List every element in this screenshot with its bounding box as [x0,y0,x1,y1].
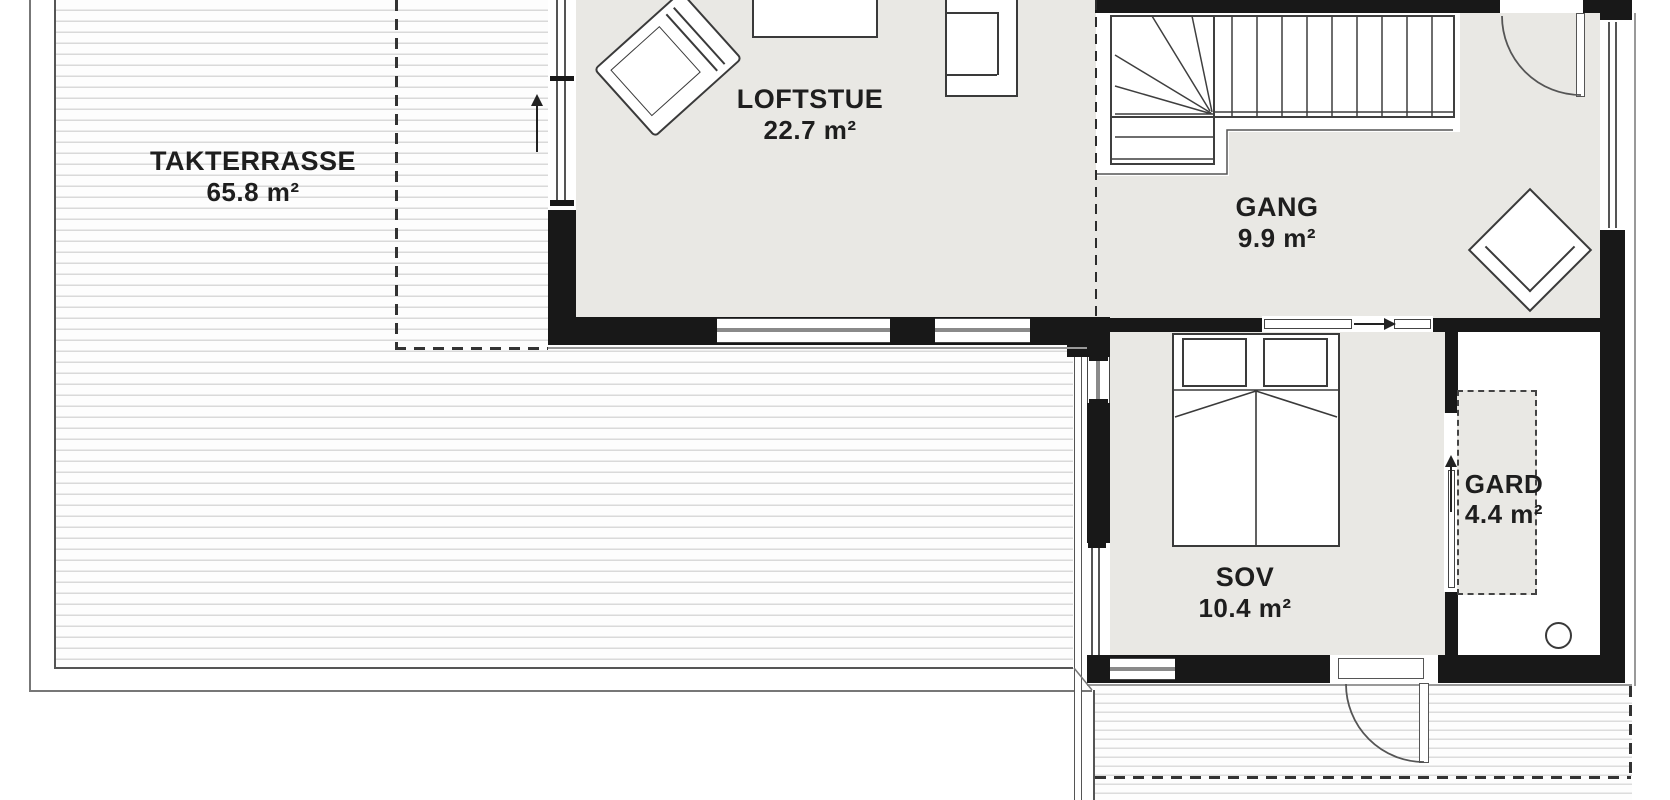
right-wall [1600,230,1625,683]
gard-bottom-wall [1438,655,1625,683]
loftstue-gang-divider [1095,0,1097,318]
sliding-door-gang-sov-panel [1264,319,1352,329]
terrace-frame-left [54,0,56,667]
entry-door-leaf [1576,13,1585,97]
roof-edge-under-loftstue [548,347,1087,349]
sov-left-window-2 [1087,543,1110,655]
room-area: 10.4 m² [1198,593,1291,623]
room-name: GANG [1236,192,1319,222]
room-label-gard: GARD 4.4 m² [1465,470,1544,529]
armchair-right [945,0,1018,97]
room-area: 22.7 m² [763,115,856,145]
sliding-door-sov-gard-panel [1448,470,1455,588]
sov-door-threshold [1338,658,1424,679]
sliding-door-gang-sov-pocket [1394,319,1431,329]
room-label-gang: GANG 9.9 m² [1236,192,1319,254]
roof-edge-under-sov [1087,684,1632,686]
staircase-winder [1110,15,1215,165]
room-label-loftstue: LOFTSTUE 22.7 m² [737,84,884,146]
balcony-dashed-right [1629,686,1632,778]
gard-circle-fixture [1545,622,1572,649]
gang-right-window [1600,20,1632,230]
terrace-dashed-boundary-v [395,0,398,349]
gang-bottom-wall-left [1087,318,1262,332]
room-area: 65.8 m² [206,177,299,207]
outer-boundary-bottom [29,690,1092,692]
gard-divider-wall-bottom [1445,592,1458,655]
entry-door-opening [1500,0,1583,13]
exterior-face-line-right [1634,13,1636,686]
balcony-dashed-bottom [1095,776,1631,779]
bed-pillow-left [1182,338,1247,387]
room-name: SOV [1216,562,1275,592]
floor-plan: TAKTERRASSE 65.8 m² LOFTSTUE 22.7 m² GAN… [0,0,1670,800]
gang-top-wall [1095,0,1500,13]
room-name: LOFTSTUE [737,84,884,114]
right-wall-stub [1600,13,1632,20]
loftstue-left-window [548,0,576,210]
outer-boundary-left [29,0,31,690]
terrace-frame-bottom [54,667,1073,669]
loftstue-bottom-window-1 [717,318,890,343]
sov-door-leaf [1419,683,1429,763]
room-label-takterrasse: TAKTERRASSE 65.8 m² [150,146,356,208]
terrace-dashed-boundary-h [395,347,548,350]
bed-pillow-right [1263,338,1328,387]
balcony-decking [1095,686,1632,800]
balcony-channel-line [1093,690,1095,800]
gang-top-wall-right [1583,0,1632,13]
sov-left-wall-mid [1087,403,1110,543]
loftstue-bottom-window-2 [935,318,1030,343]
room-name: TAKTERRASSE [150,146,356,176]
room-name: GARD [1465,469,1544,499]
terrace-right-edge [1074,340,1082,800]
room-area: 4.4 m² [1465,499,1543,529]
room-area: 9.9 m² [1238,223,1316,253]
room-label-sov: SOV 10.4 m² [1198,562,1291,624]
coffee-table [752,0,878,38]
sov-bottom-window [1110,658,1175,680]
sov-left-window-1 [1087,357,1110,403]
gang-bottom-wall-right [1433,318,1600,332]
